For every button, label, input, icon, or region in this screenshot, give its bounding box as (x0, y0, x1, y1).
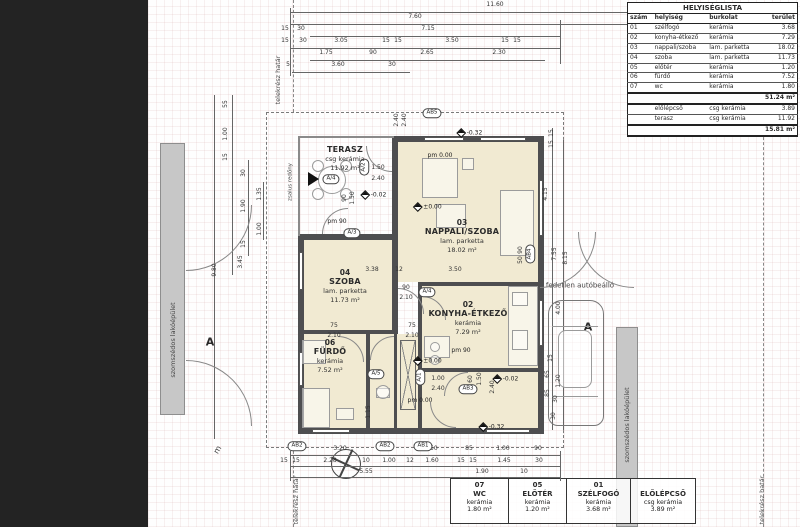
dimension-line (290, 466, 560, 467)
dimension-label: 15 (457, 458, 465, 464)
north-label: m (213, 445, 224, 456)
dimension-label: 30 (299, 38, 307, 44)
dimension-label: 15 (469, 458, 477, 464)
dimension-label: 1.75 (319, 50, 332, 56)
dimension-label: 9.80 (212, 263, 218, 276)
dimension-label: 90 (534, 446, 542, 452)
north-symbol (331, 449, 361, 479)
callout-előlépcső: ELŐLÉPCSŐcsg kerámia3.89 m² (631, 479, 695, 523)
dimension-label: 1.45 (497, 458, 510, 464)
boundary-line (293, 0, 294, 112)
opening-marker: AB4 (525, 244, 535, 263)
dimension-label: 3.20 (333, 446, 346, 452)
dimension-label: 11.60 (486, 2, 503, 8)
dimension-label: 5 (286, 62, 290, 68)
boundary-label-top-left: telekrész határ (275, 56, 282, 105)
dimension-label: 2.28 (323, 458, 336, 464)
level-mark: pm 90 (327, 219, 346, 225)
level-diamond-icon (492, 374, 502, 384)
level-mark: -0.32 (458, 130, 483, 137)
dimension-label: 10 (520, 469, 528, 475)
level-mark: ±0.00 (414, 204, 441, 211)
furniture (462, 158, 474, 170)
dimension-label: 2.30 (492, 50, 505, 56)
dimension-label: 15 (501, 38, 509, 44)
opening-marker: A/4 (418, 287, 435, 297)
dimension-label: 2.65 (420, 50, 433, 56)
furniture (512, 330, 528, 350)
dimension-label: 1.50 (477, 372, 483, 385)
furniture-circle (376, 385, 390, 399)
dimension-label: 1.00 (223, 127, 229, 140)
door-swing-arc (578, 232, 634, 288)
room-callout-strip: 07WCkerámia1.80 m²05ELŐTÉRkerámia1.20 m²… (450, 478, 696, 524)
dimension-label: 15 (281, 38, 289, 44)
furniture (422, 158, 458, 198)
level-mark: -0.02 (362, 192, 387, 199)
dimension-label: 3.05 (334, 38, 347, 44)
dimension-label: 90 (518, 246, 524, 254)
level-mark: -0.02 (494, 376, 519, 383)
dimension-label: 2.40 (431, 386, 444, 392)
dimension-line (310, 60, 545, 61)
viewer-dark-panel (0, 0, 148, 527)
callout-wc: 07WCkerámia1.80 m² (451, 479, 509, 523)
level-diamond-icon (413, 202, 423, 212)
dimension-line (560, 20, 561, 64)
car-roof (558, 330, 592, 388)
dimension-label: 7.60 (408, 14, 421, 20)
dimension-label: 75 (408, 323, 416, 329)
room-label-03: 03NAPPALI/SZOBAlam. parketta18.02 m² (425, 218, 499, 254)
opening-marker: AB5 (422, 108, 441, 118)
dimension-label: 30 (535, 458, 543, 464)
dimension-label: 1.20 (556, 374, 562, 387)
boundary-line (763, 112, 764, 527)
dimension-label: 3.50 (448, 267, 461, 273)
furniture-circle (312, 188, 324, 200)
opening-marker: AB2 (287, 441, 306, 451)
dimension-label: 85 (545, 389, 551, 397)
level-diamond-icon (360, 190, 370, 200)
dimension-line (560, 451, 561, 481)
dimension-label: 15 (549, 140, 555, 148)
dimension-label: 12 (406, 458, 414, 464)
terrace-pointer (308, 172, 319, 186)
dimension-label: 15 (292, 458, 300, 464)
dimension-label: 15 (548, 354, 554, 362)
dimension-label: 10 (362, 458, 370, 464)
level-diamond-icon (413, 356, 423, 366)
dimension-label: 12 (395, 267, 403, 273)
dimension-label: 50 (518, 256, 524, 264)
dimension-line (263, 182, 264, 240)
dimension-label: 30 (551, 412, 557, 420)
room-label-02: 02KONYHA-ÉTKEZŐkerámia7.29 m² (428, 300, 507, 336)
level-mark: pm 0.00 (408, 398, 433, 404)
dimension-label: 2.40 (402, 113, 408, 126)
dimension-line (310, 36, 560, 37)
opening-marker: A/3 (343, 228, 360, 238)
level-mark: pm 0.00 (428, 153, 453, 159)
car-line (552, 326, 598, 327)
dimension-label: 5.55 (359, 469, 372, 475)
opening-marker: A/4 (322, 174, 339, 184)
dimension-label: 60 (468, 375, 474, 383)
callout-szélfogó: 01SZÉLFOGÓkerámia3.68 m² (567, 479, 631, 523)
dimension-label: 15 (281, 26, 289, 32)
dimension-label: 1.00 (431, 376, 444, 382)
dimension-label: 90 (342, 194, 348, 202)
level-diamond-icon (478, 422, 488, 432)
dimension-label: 15 (223, 153, 229, 161)
opening-marker: AB1 (413, 441, 432, 451)
dimension-label: 3.45 (238, 255, 244, 268)
legend-table: HELYISÉGLISTAszámhelyiségburkolatterület… (627, 2, 798, 137)
dimension-label: 4.15 (543, 187, 549, 200)
dimension-label: 3.38 (365, 267, 378, 273)
dimension-label: 3.60 (331, 62, 344, 68)
furniture-circle (430, 342, 440, 352)
level-mark: -0.32 (480, 424, 505, 431)
door-swing-arc (186, 360, 252, 426)
dimension-label: 2.40 (394, 113, 400, 126)
dimension-label: 1.00 (382, 458, 395, 464)
dimension-label: 55 (223, 100, 229, 108)
dimension-label: 1.90 (241, 199, 247, 212)
dimension-label: 65 (545, 370, 551, 378)
dimension-label: 1.00 (496, 446, 509, 452)
dimension-label: 30 (553, 395, 559, 403)
dimension-label: 30 (388, 62, 396, 68)
dimension-label: 1.00 (257, 222, 263, 235)
level-diamond-icon (456, 128, 466, 138)
dimension-label: 15 (280, 458, 288, 464)
furniture (302, 388, 330, 428)
dimension-label: 1.15 (366, 405, 372, 418)
level-mark: pm 90 (451, 348, 470, 354)
dimension-label: 75 (330, 323, 338, 329)
dimension-label: 15 (513, 38, 521, 44)
dimension-line (290, 451, 291, 481)
neighbor-left-label: szomszédos lakóépület (170, 302, 177, 377)
dimension-label: 85 (465, 446, 473, 452)
neighbor-right-label: szomszédos lakóépület (624, 387, 631, 462)
dimension-label: 2.40 (371, 176, 384, 182)
dimension-label: 30 (297, 26, 305, 32)
dimension-label: 2.10 (405, 333, 418, 339)
dimension-label: 15 (549, 129, 555, 137)
dimension-line (290, 455, 560, 456)
floor-plan-sheet: szomszédos lakóépület szomszédos lakóépü… (0, 0, 800, 527)
dimension-label: 1.50 (350, 191, 356, 204)
opening-marker: A/1 (415, 368, 425, 385)
dimension-label: 1.50 (371, 165, 384, 171)
room-label-04: 04SZOBAlam. parketta11.73 m² (323, 268, 367, 304)
dimension-label: 15 (382, 38, 390, 44)
dimension-label: 1.60 (425, 458, 438, 464)
terrace-label: TERASZcsg kerámia11.92 m² (325, 145, 364, 172)
section-marker-a-left: A (206, 337, 215, 348)
dimension-label: 3.50 (445, 38, 458, 44)
callout-előtér: 05ELŐTÉRkerámia1.20 m² (509, 479, 567, 523)
boundary-label-bottom-right: telekrész határ (759, 476, 766, 525)
opening-marker: A/5 (367, 369, 384, 379)
opening-marker: AB3 (458, 384, 477, 394)
dimension-label: 15 (394, 38, 402, 44)
dimension-line (290, 8, 291, 76)
dimension-label: 90 (369, 50, 377, 56)
dimension-label: 1.35 (257, 187, 263, 200)
furniture-circle (312, 160, 324, 172)
dimension-line (290, 477, 560, 478)
dimension-label: 4.00 (556, 301, 562, 314)
opening-marker: AB2 (375, 441, 394, 451)
dimension-label: 7.15 (421, 26, 434, 32)
dimension-label: 90 (402, 285, 410, 291)
dimension-label: 15 (241, 240, 247, 248)
room-label-06: 06FÜRDŐkerámia7.52 m² (314, 338, 347, 374)
dimension-label: 7.55 (552, 247, 558, 260)
dimension-label: 2.10 (399, 295, 412, 301)
level-mark: ±0.00 (414, 358, 441, 365)
dimension-label: 1.90 (475, 469, 488, 475)
dimension-label: 8.15 (563, 251, 569, 264)
dimension-label: 30 (241, 169, 247, 177)
dimension-line (292, 72, 410, 73)
furniture (336, 408, 354, 420)
furniture (512, 292, 528, 306)
